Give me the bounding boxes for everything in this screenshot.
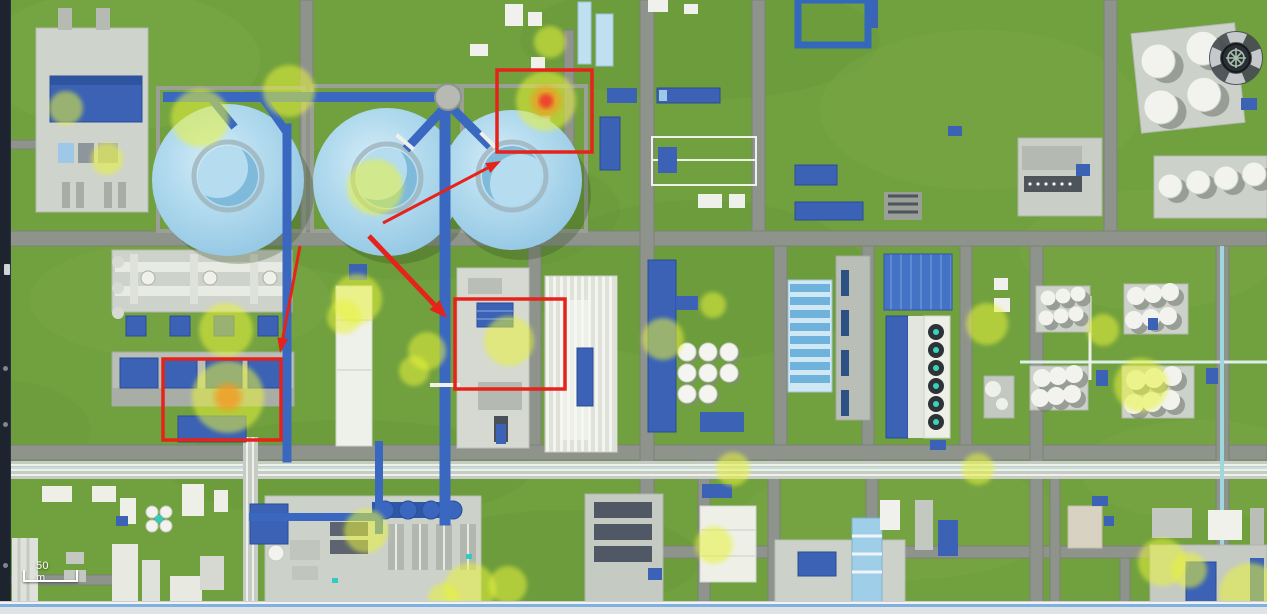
heat-marker[interactable] — [49, 91, 83, 125]
scale-bar-bracket — [12, 556, 102, 586]
striped-rack-building — [545, 276, 617, 452]
northeast-process-building — [1018, 138, 1102, 216]
panel-handle-dot[interactable] — [3, 422, 8, 427]
air-cooler-building — [886, 316, 950, 450]
heat-marker[interactable] — [700, 292, 726, 318]
east-tank-row — [1154, 156, 1267, 218]
compass-navigation-icon[interactable] — [1208, 30, 1264, 86]
white-shed — [994, 278, 1008, 290]
small-blue-shed — [1241, 98, 1257, 110]
heat-marker[interactable] — [327, 300, 361, 334]
heat-marker[interactable] — [695, 526, 733, 564]
heat-marker[interactable] — [171, 89, 229, 147]
blue-roof-hall — [884, 254, 952, 310]
heat-marker[interactable] — [1114, 358, 1168, 412]
small-process-unit — [984, 376, 1014, 418]
heat-marker[interactable] — [347, 159, 403, 215]
panel-handle-dot[interactable] — [3, 366, 8, 371]
heat-marker[interactable] — [399, 356, 429, 386]
map-viewport[interactable]: 50 m — [0, 0, 1267, 614]
panel-handle-tab[interactable] — [4, 264, 10, 275]
heat-marker[interactable] — [91, 143, 123, 175]
heat-marker[interactable] — [263, 65, 315, 117]
long-gray-building — [836, 256, 870, 420]
heat-marker[interactable] — [516, 71, 576, 131]
heat-marker[interactable] — [484, 316, 534, 366]
site-map-canvas[interactable] — [0, 0, 1267, 614]
south-dark-slab-building — [585, 494, 663, 602]
cooling-bank — [788, 280, 832, 392]
heat-marker[interactable] — [716, 452, 750, 486]
blue-shed — [700, 412, 744, 432]
panel-handle-dot[interactable] — [3, 563, 8, 568]
heat-marker[interactable] — [489, 566, 527, 604]
heat-marker[interactable] — [962, 453, 994, 485]
bottom-panel-edge — [0, 601, 1267, 614]
heat-marker[interactable] — [966, 303, 1008, 345]
heat-marker[interactable] — [1171, 552, 1207, 588]
heat-marker[interactable] — [199, 303, 253, 357]
heat-marker[interactable] — [344, 509, 388, 553]
heat-marker[interactable] — [642, 318, 684, 360]
heat-marker[interactable] — [1087, 314, 1119, 346]
blue-shed — [676, 296, 698, 310]
left-panel-edge[interactable] — [0, 0, 11, 602]
heat-marker[interactable] — [534, 26, 566, 58]
heat-marker[interactable] — [192, 361, 264, 433]
